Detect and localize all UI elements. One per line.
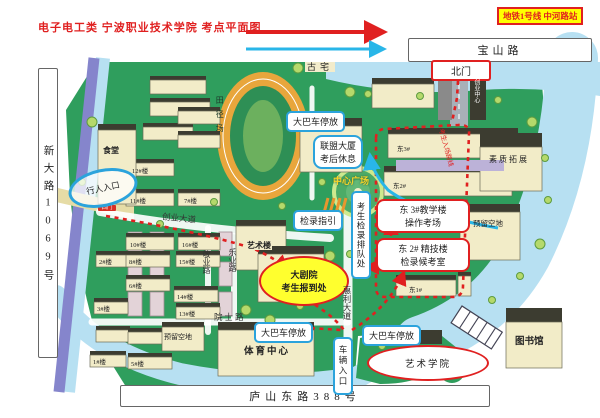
- east2-line1: 东 2# 精技楼: [383, 242, 463, 255]
- east2-exam-callout: 东 2# 精技楼 检录候考室: [383, 242, 463, 268]
- building-label: 7#楼: [184, 195, 197, 205]
- art-building-label: 艺术楼: [246, 241, 272, 250]
- building-label: 15#楼: [179, 256, 195, 266]
- theater-line1: 大剧院: [281, 268, 326, 281]
- building-label: 东1#: [409, 284, 422, 294]
- check-in-guide-callout: 检录指引: [293, 210, 343, 231]
- art-college-callout: 艺术学院: [367, 345, 489, 381]
- north-gate-label: 北门: [431, 60, 491, 81]
- campus-map-graphic: [0, 0, 600, 418]
- theater-checkin-callout: 大剧院 考生报到处: [281, 268, 326, 294]
- building-label: 东3#: [397, 143, 410, 153]
- road-sign-xindalu: 新大路1069号: [38, 68, 58, 358]
- road-huili: 惠利大道: [341, 286, 353, 320]
- campus-map-page: 电子电工类 宁波职业技术学院 考点平面图 地铁1号线 中河路站 宝山路 新大路1…: [0, 0, 600, 418]
- metro-station-badge: 地铁1号线 中河路站: [497, 7, 583, 25]
- reserved-land-west-label: 预留空地: [164, 333, 192, 341]
- building-label: 16#楼: [182, 239, 198, 249]
- vehicle-entrance-callout: 车辆入口: [333, 337, 353, 395]
- building-label: 12#楼: [132, 165, 148, 175]
- road-sign-lushandonglu: 庐山东路388号: [120, 385, 490, 407]
- east2-line2: 检录候考室: [383, 255, 463, 268]
- central-plaza-label: 中心广场: [333, 176, 369, 186]
- road-sign-baoshan: 宝山路: [408, 38, 592, 62]
- quality-development-label: 素质拓展: [489, 155, 529, 164]
- sports-center-label: 体育中心: [244, 347, 290, 358]
- canteen-label: 食堂: [103, 146, 119, 155]
- union-tower-line2: 考后休息: [320, 152, 356, 165]
- track-label: 田径场: [215, 96, 224, 138]
- building-label: 5#楼: [131, 358, 144, 368]
- road-jingye: 敬业路: [201, 250, 212, 274]
- union-tower-line1: 联盟大厦: [320, 139, 356, 152]
- building-label: 14#楼: [177, 291, 193, 301]
- building-label: 10#楼: [130, 239, 146, 249]
- east3-line2: 操作考场: [383, 216, 463, 229]
- bus-parking-southeast-callout: 大巴车停放: [362, 325, 421, 346]
- building-label: 8#楼: [129, 256, 142, 266]
- road-leye: 乐业路: [227, 248, 238, 272]
- innovation-center-label: 创业中心: [472, 79, 479, 103]
- building-label: 2#楼: [99, 256, 112, 266]
- candidate-queue-callout: 考生检录排队处: [351, 191, 371, 279]
- building-label: 东2#: [393, 180, 406, 190]
- ancient-house-label: 古宅: [305, 62, 335, 72]
- bus-parking-top-callout: 大巴车停放: [286, 111, 345, 132]
- east3-exam-callout: 东 3#教学楼 操作考场: [383, 203, 463, 229]
- theater-line2: 考生报到处: [281, 281, 326, 294]
- reserved-land-east-label: 预留空地: [473, 220, 503, 229]
- library-label: 图书馆: [515, 337, 544, 348]
- building-label: 3#楼: [97, 303, 110, 313]
- union-tower-rest-callout: 联盟大厦 考后休息: [320, 139, 356, 165]
- east3-line1: 东 3#教学楼: [383, 203, 463, 216]
- building-label: 6#楼: [129, 280, 142, 290]
- building-label: 13#楼: [179, 308, 195, 318]
- page-title: 电子电工类 宁波职业技术学院 考点平面图: [38, 22, 262, 35]
- bus-parking-southwest-callout: 大巴车停放: [254, 322, 313, 343]
- building-label: 11#楼: [130, 195, 146, 205]
- road-yuanshi: 院士路: [214, 311, 246, 323]
- building-label: 1#楼: [93, 356, 106, 366]
